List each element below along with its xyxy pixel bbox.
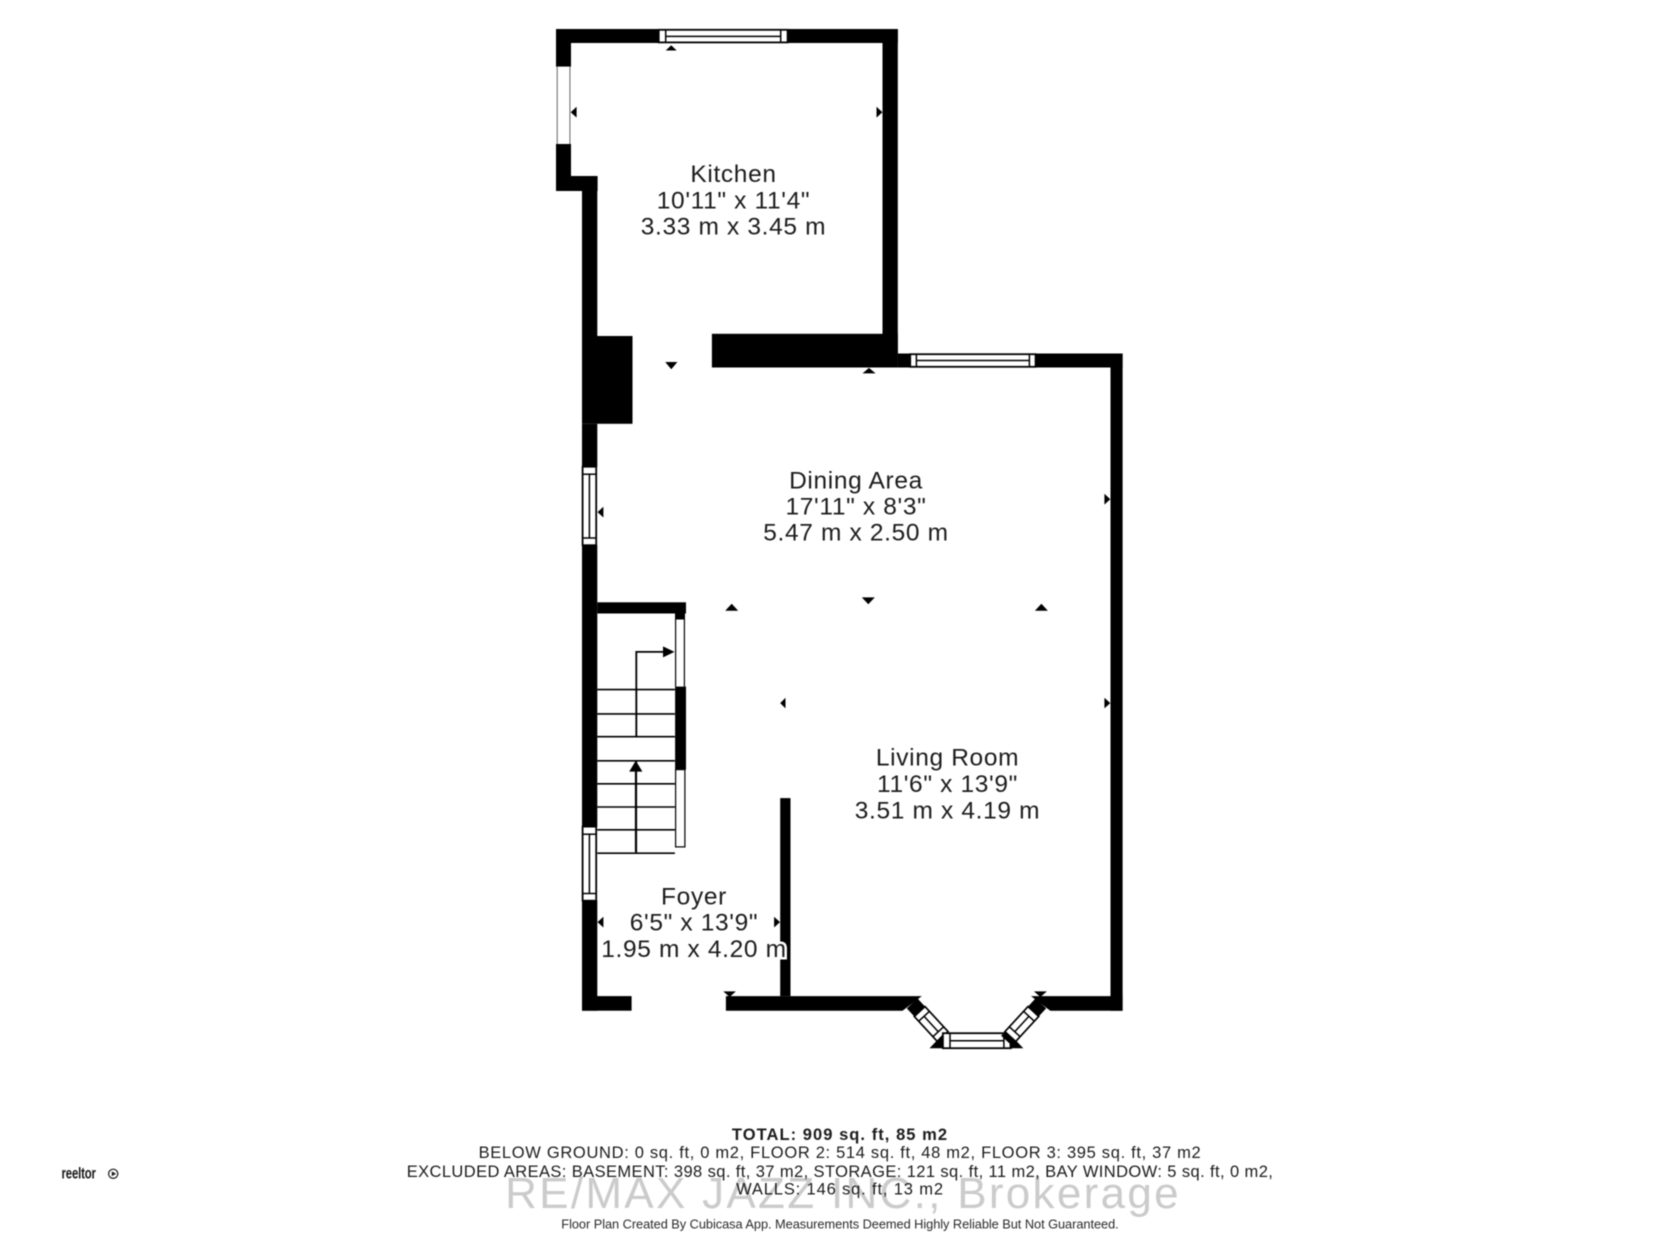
svg-text:11'6" x 13'9": 11'6" x 13'9" bbox=[877, 771, 1018, 798]
svg-text:10'11" x 11'4": 10'11" x 11'4" bbox=[657, 188, 810, 215]
svg-text:Kitchen: Kitchen bbox=[690, 161, 776, 188]
svg-text:WALLS: 146 sq. ft, 13 m2: WALLS: 146 sq. ft, 13 m2 bbox=[736, 1181, 944, 1199]
svg-text:EXCLUDED AREAS: BASEMENT: 398: EXCLUDED AREAS: BASEMENT: 398 sq. ft, 37… bbox=[407, 1163, 1274, 1181]
svg-text:6'5" x 13'9": 6'5" x 13'9" bbox=[630, 910, 759, 937]
svg-text:17'11" x 8'3": 17'11" x 8'3" bbox=[786, 494, 927, 521]
svg-text:5.47 m x 2.50 m: 5.47 m x 2.50 m bbox=[763, 520, 948, 547]
svg-text:reeltor: reeltor bbox=[62, 1164, 97, 1182]
svg-text:Dining Area: Dining Area bbox=[789, 468, 923, 495]
svg-text:TOTAL: 909 sq. ft, 85 m2: TOTAL: 909 sq. ft, 85 m2 bbox=[732, 1126, 948, 1144]
svg-text:3.51 m x 4.19 m: 3.51 m x 4.19 m bbox=[855, 798, 1040, 825]
svg-text:Foyer: Foyer bbox=[661, 883, 727, 910]
svg-text:Floor Plan Created By Cubicasa: Floor Plan Created By Cubicasa App. Meas… bbox=[561, 1217, 1118, 1232]
svg-text:BELOW GROUND: 0 sq. ft, 0 m2,: BELOW GROUND: 0 sq. ft, 0 m2, FLOOR 2: 5… bbox=[479, 1144, 1202, 1162]
svg-text:3.33 m x 3.45 m: 3.33 m x 3.45 m bbox=[641, 214, 826, 241]
svg-text:Living Room: Living Room bbox=[876, 745, 1019, 772]
svg-text:1.95 m x 4.20 m: 1.95 m x 4.20 m bbox=[601, 936, 786, 963]
